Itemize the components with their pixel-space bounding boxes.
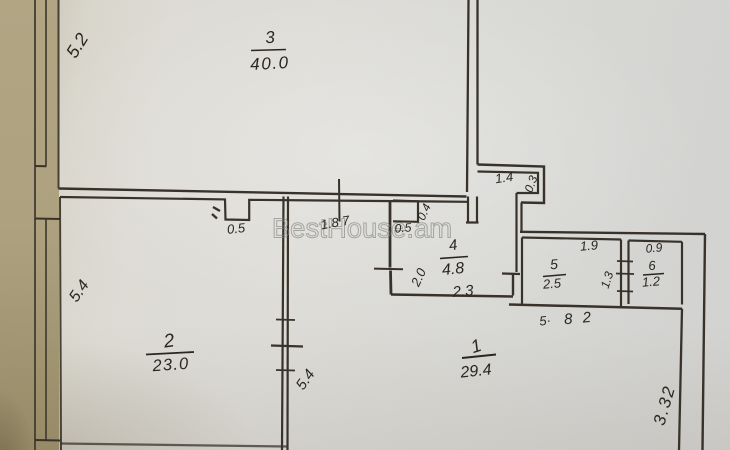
svg-text:4.8: 4.8 xyxy=(441,260,465,279)
svg-text:0.5: 0.5 xyxy=(226,220,246,237)
svg-text:23.0: 23.0 xyxy=(151,355,190,376)
svg-text:5: 5 xyxy=(549,256,558,273)
svg-text:1.2: 1.2 xyxy=(641,273,661,290)
svg-text:0.9: 0.9 xyxy=(645,240,663,255)
svg-text:40.0: 40.0 xyxy=(250,53,290,74)
svg-text:8 2: 8 2 xyxy=(563,309,594,329)
svg-text:1.4: 1.4 xyxy=(494,169,514,186)
svg-text:29.4: 29.4 xyxy=(459,361,493,381)
svg-text:1.9: 1.9 xyxy=(579,237,598,254)
svg-text:5·: 5· xyxy=(539,312,552,328)
svg-text:0.5: 0.5 xyxy=(394,220,412,235)
svg-text:2.3: 2.3 xyxy=(451,282,475,301)
svg-text:2.5: 2.5 xyxy=(541,275,562,292)
